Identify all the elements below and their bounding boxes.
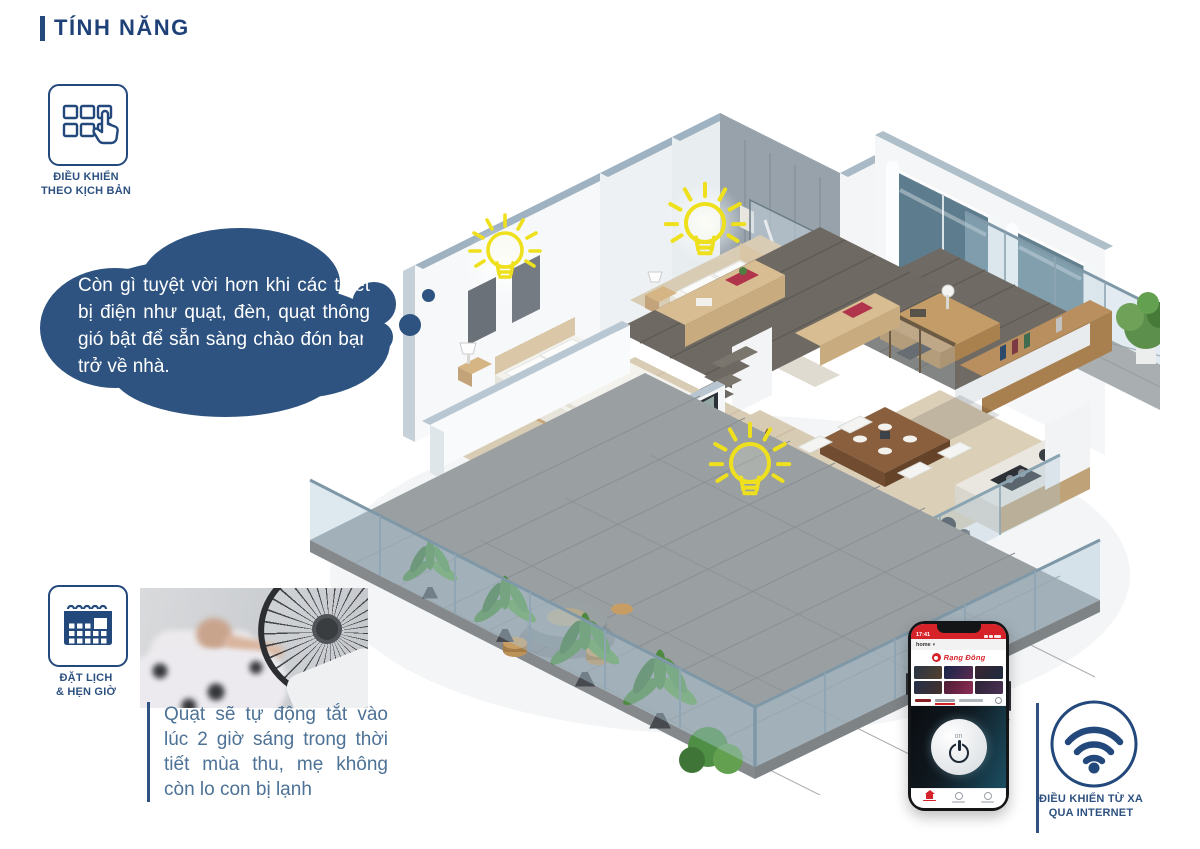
remote-feature-label: ĐIỀU KHIỂN TỪ XA QUA INTERNET — [1018, 792, 1164, 821]
scenario-grid-hand-icon — [50, 86, 126, 164]
infographic-page: TÍNH NĂNG — [0, 0, 1200, 849]
room-thumbnail — [975, 666, 1003, 679]
remote-feature-icon — [1048, 698, 1140, 795]
schedule-caption: Quạt sẽ tự động tắt vào lúc 2 giờ sáng t… — [147, 702, 388, 802]
fan-hub — [312, 614, 342, 644]
room-thumbnail — [914, 666, 942, 679]
brand-logo-text: Rạng Đông — [944, 653, 986, 662]
tab-active — [935, 699, 955, 702]
status-time: 17:41 — [916, 632, 930, 638]
room-thumbnail — [944, 681, 972, 694]
nav-profile — [981, 792, 994, 803]
table-lamp — [460, 343, 476, 354]
schedule-feature-label: ĐẶT LỊCH & HẸN GIỜ — [22, 671, 150, 700]
gear-icon — [995, 697, 1002, 704]
bubble-tail-dot — [422, 289, 435, 302]
home-icon — [926, 794, 933, 799]
home-selector: home▾ — [911, 639, 1006, 650]
phone-bottom-nav — [911, 788, 1006, 806]
phone-mockup: 17:41 home▾ Rạng Đông — [908, 621, 1009, 811]
device-tabs — [911, 696, 1006, 706]
room-thumbnail — [975, 681, 1003, 694]
phone-screen: 17:41 home▾ Rạng Đông — [911, 624, 1006, 808]
page-header: TÍNH NĂNG — [40, 15, 190, 41]
title-accent-bar — [40, 16, 45, 41]
nav-devices — [952, 792, 965, 803]
page-title: TÍNH NĂNG — [54, 15, 190, 41]
wifi-icon — [1048, 698, 1140, 790]
smart-home-isometric-illustration — [300, 95, 1160, 795]
phone-notch — [937, 624, 981, 633]
chevron-down-icon: ▾ — [933, 642, 936, 648]
nav-home — [923, 794, 936, 802]
bubble-tail-dot — [363, 322, 393, 352]
schedule-feature-icon-box — [48, 585, 128, 667]
power-on-label: on — [955, 733, 963, 740]
power-panel: on — [911, 706, 1006, 788]
scenario-feature-label: ĐIỀU KHIỂN THEO KỊCH BẢN — [22, 170, 150, 199]
calendar-icon — [50, 587, 126, 665]
power-button: on — [931, 719, 987, 775]
power-icon — [949, 741, 969, 761]
thought-bubble-text: Còn gì tuyệt vời hơn khi các thiết bị đi… — [78, 273, 370, 381]
sleeping-child-fan-photo — [140, 588, 368, 708]
devices-icon — [955, 792, 963, 800]
signal-battery-icons — [984, 635, 1001, 638]
tab-all-devices — [915, 699, 931, 702]
brand-logo-icon — [932, 653, 941, 662]
profile-icon — [984, 792, 992, 800]
scenario-feature-icon-box — [48, 84, 128, 166]
table-lamp — [648, 272, 662, 282]
bubble-tail-dot — [399, 314, 421, 336]
tab-other — [959, 699, 983, 702]
room-thumbnails — [911, 665, 1006, 696]
room-thumbnail — [944, 666, 972, 679]
brand-row: Rạng Đông — [911, 650, 1006, 665]
room-thumbnail — [914, 681, 942, 694]
